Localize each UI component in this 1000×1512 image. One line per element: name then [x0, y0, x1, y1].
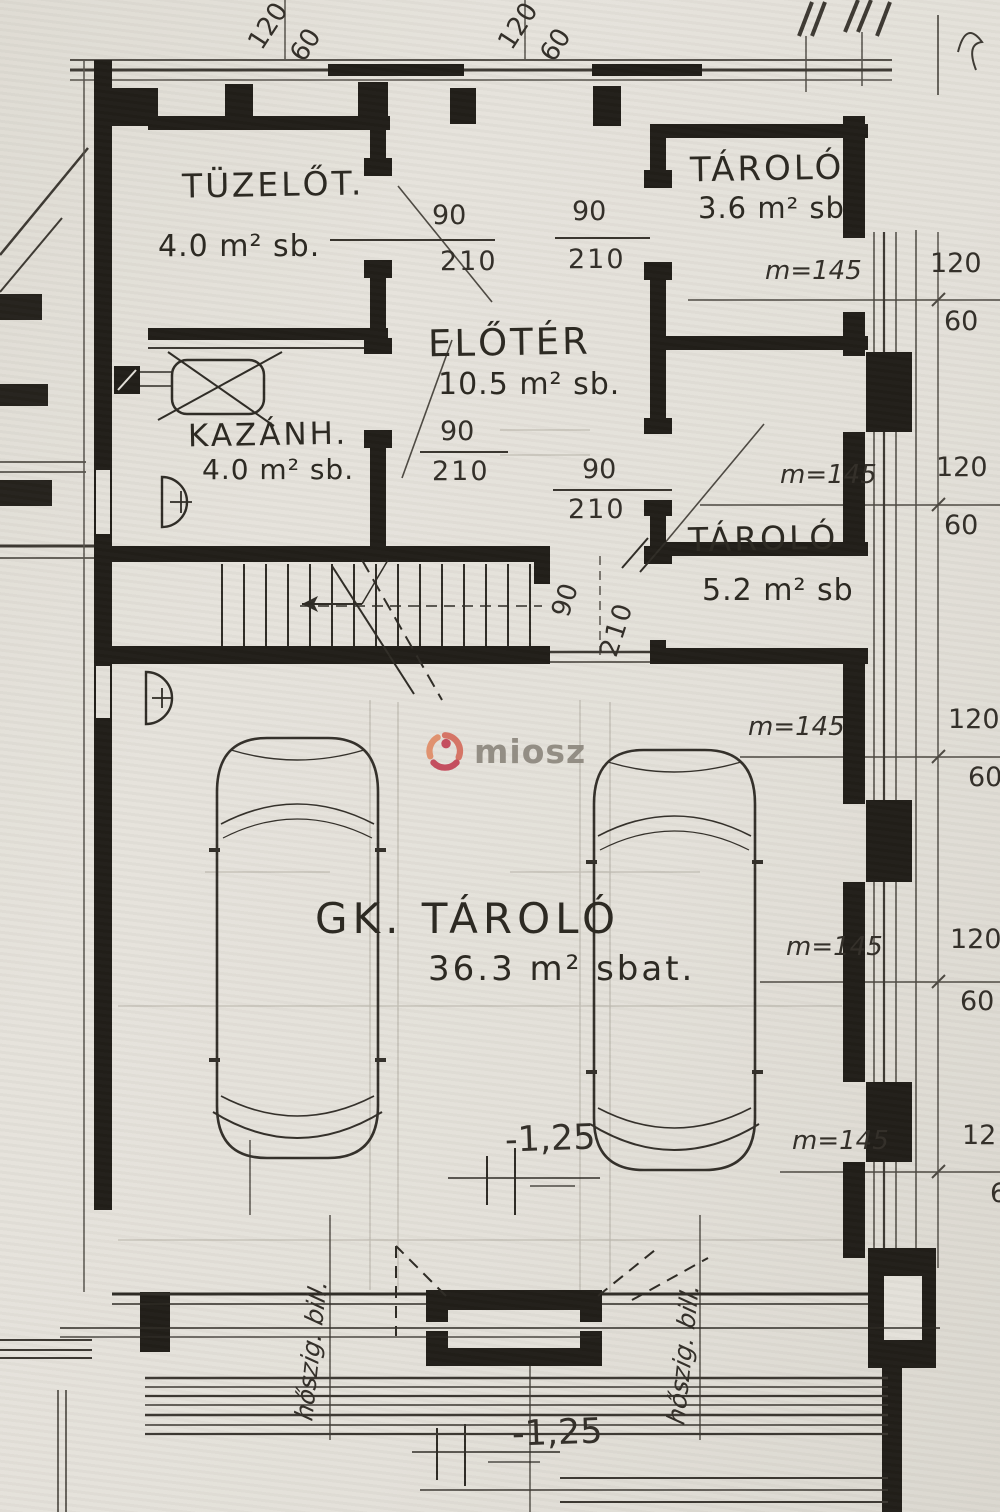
dim-marker-row5: m=145 [792, 1128, 889, 1154]
dim-den-row4: 60 [960, 988, 994, 1015]
dim-den-row2: 60 [944, 512, 978, 539]
dim-den-row1: 60 [944, 308, 978, 335]
floorplan-page: miosz TÜZELŐT. 4.0 m² sb. TÁROLÓ 3.6 m² … [0, 0, 1000, 1512]
dim-den-row3: 60 [968, 764, 1000, 791]
door-dim-4-height: 210 [568, 496, 626, 523]
watermark-text: miosz [474, 732, 586, 771]
watermark: miosz [424, 730, 586, 772]
level-marker-lower: -1,25 [511, 1414, 603, 1452]
dim-num-row5: 12 [962, 1122, 996, 1149]
car-symbol-left [209, 738, 386, 1158]
room-label-garage: GK. TÁROLÓ [315, 898, 620, 940]
room-label-tarolo-top: TÁROLÓ [690, 151, 845, 188]
room-area-tuzelot: 4.0 m² sb. [158, 232, 320, 262]
dim-num-row2: 120 [936, 454, 988, 481]
boiler-icon [114, 352, 282, 426]
door-dim-3-width: 90 [440, 418, 474, 445]
dim-marker-row4: m=145 [786, 934, 883, 960]
room-label-eloter: ELŐTÉR [428, 323, 591, 363]
door-dim-1-width: 90 [432, 202, 466, 229]
garage-front-and-doors [60, 1246, 940, 1366]
door-dim-3-height: 210 [432, 458, 490, 485]
door-dim-1-height: 210 [440, 248, 498, 275]
door-dim-2-width: 90 [572, 198, 606, 225]
dim-num-row4: 120 [950, 926, 1000, 953]
room-label-tarolo-mid: TÁROLÓ [688, 521, 839, 557]
room-area-garage: 36.3 m² sbat. [428, 952, 695, 986]
dim-num-row3: 120 [948, 706, 1000, 733]
room-area-eloter: 10.5 m² sb. [438, 370, 620, 400]
room-area-tarolo-mid: 5.2 m² sb [702, 576, 854, 606]
room-label-tuzelot: TÜZELŐT. [182, 166, 365, 202]
dim-marker-row3: m=145 [748, 714, 845, 740]
room-area-kazanh: 4.0 m² sb. [202, 456, 354, 484]
dim-num-row1: 120 [930, 250, 982, 277]
level-marker-upper: -1,25 [504, 1120, 596, 1158]
room-label-kazanh: KAZÁNH. [188, 419, 349, 453]
dim-marker-row2: m=145 [780, 462, 877, 488]
dim-marker-row1: m=145 [765, 258, 862, 284]
floor-drain-icons [146, 477, 192, 724]
door-dim-4-width: 90 [582, 456, 616, 483]
dim-den-row5: 60 [990, 1180, 1000, 1207]
door-dim-2-height: 210 [568, 246, 626, 273]
watermark-logo-icon [424, 730, 466, 772]
right-wall-and-windows [843, 116, 936, 1512]
room-area-tarolo-top: 3.6 m² sb [698, 194, 845, 223]
